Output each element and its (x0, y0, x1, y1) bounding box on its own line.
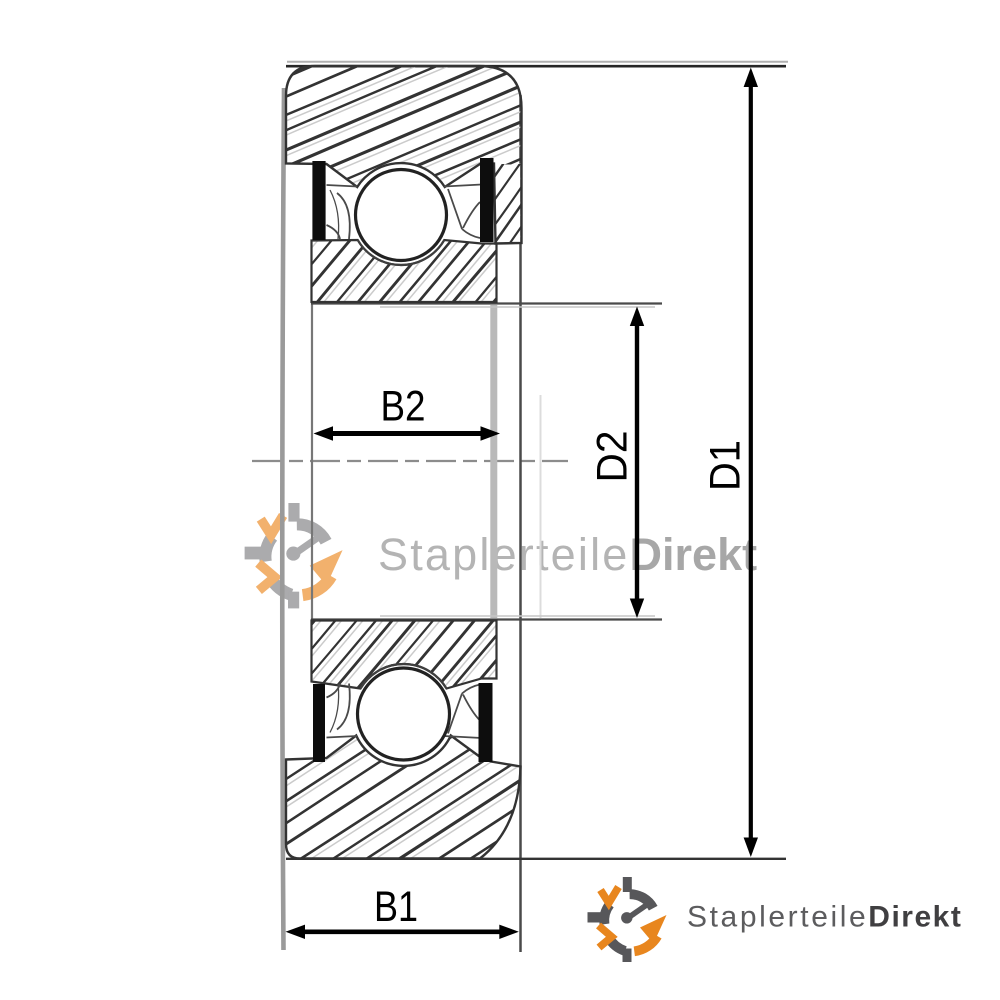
svg-text:D1: D1 (702, 440, 750, 491)
svg-text:D2: D2 (589, 431, 637, 483)
svg-text:StaplerteileDirekt: StaplerteileDirekt (687, 901, 962, 934)
svg-text:B2: B2 (381, 383, 426, 431)
svg-text:B1: B1 (374, 883, 418, 931)
svg-text:StaplerteileDirekt: StaplerteileDirekt (378, 529, 757, 580)
